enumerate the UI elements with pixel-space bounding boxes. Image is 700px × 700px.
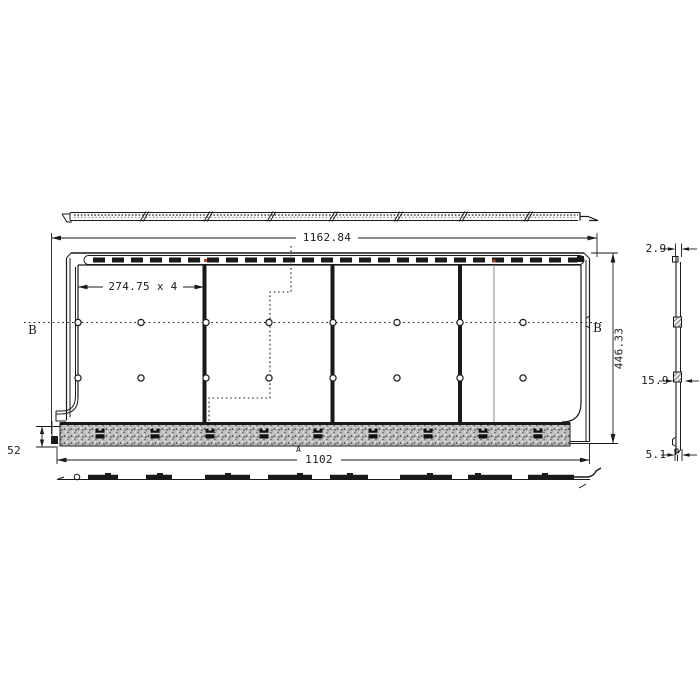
bottom-section-view: [57, 468, 601, 488]
dim-overall-height-label: 446.33: [614, 322, 625, 376]
detail-boundary: [209, 246, 291, 423]
dim-panel-pitch-label: 274.75 x 4: [103, 281, 183, 292]
section-label-b-right: B: [593, 322, 602, 334]
detail-marker-a: A: [296, 446, 301, 454]
dim-bottom-thickness-label: 5.1: [644, 449, 668, 460]
cad-drawing-sheet: 1162.84 274.75 x 4 446.33 1102 52 2.9 15…: [0, 0, 700, 700]
section-label-b-left: B: [28, 324, 37, 336]
bottom-batten: [60, 423, 570, 446]
dim-overall-width-label: 1162.84: [296, 232, 358, 243]
front-view: [24, 246, 603, 446]
top-section-view: [62, 212, 598, 223]
dim-base-width-label: 1102: [297, 454, 341, 465]
dim-mid-depth-label: 15.9: [640, 375, 670, 386]
side-profile-view: [673, 257, 682, 462]
dim-base-height-label: 52: [4, 445, 24, 456]
drawing-canvas: [0, 0, 700, 700]
dim-edge-thickness-label: 2.9: [644, 243, 668, 254]
